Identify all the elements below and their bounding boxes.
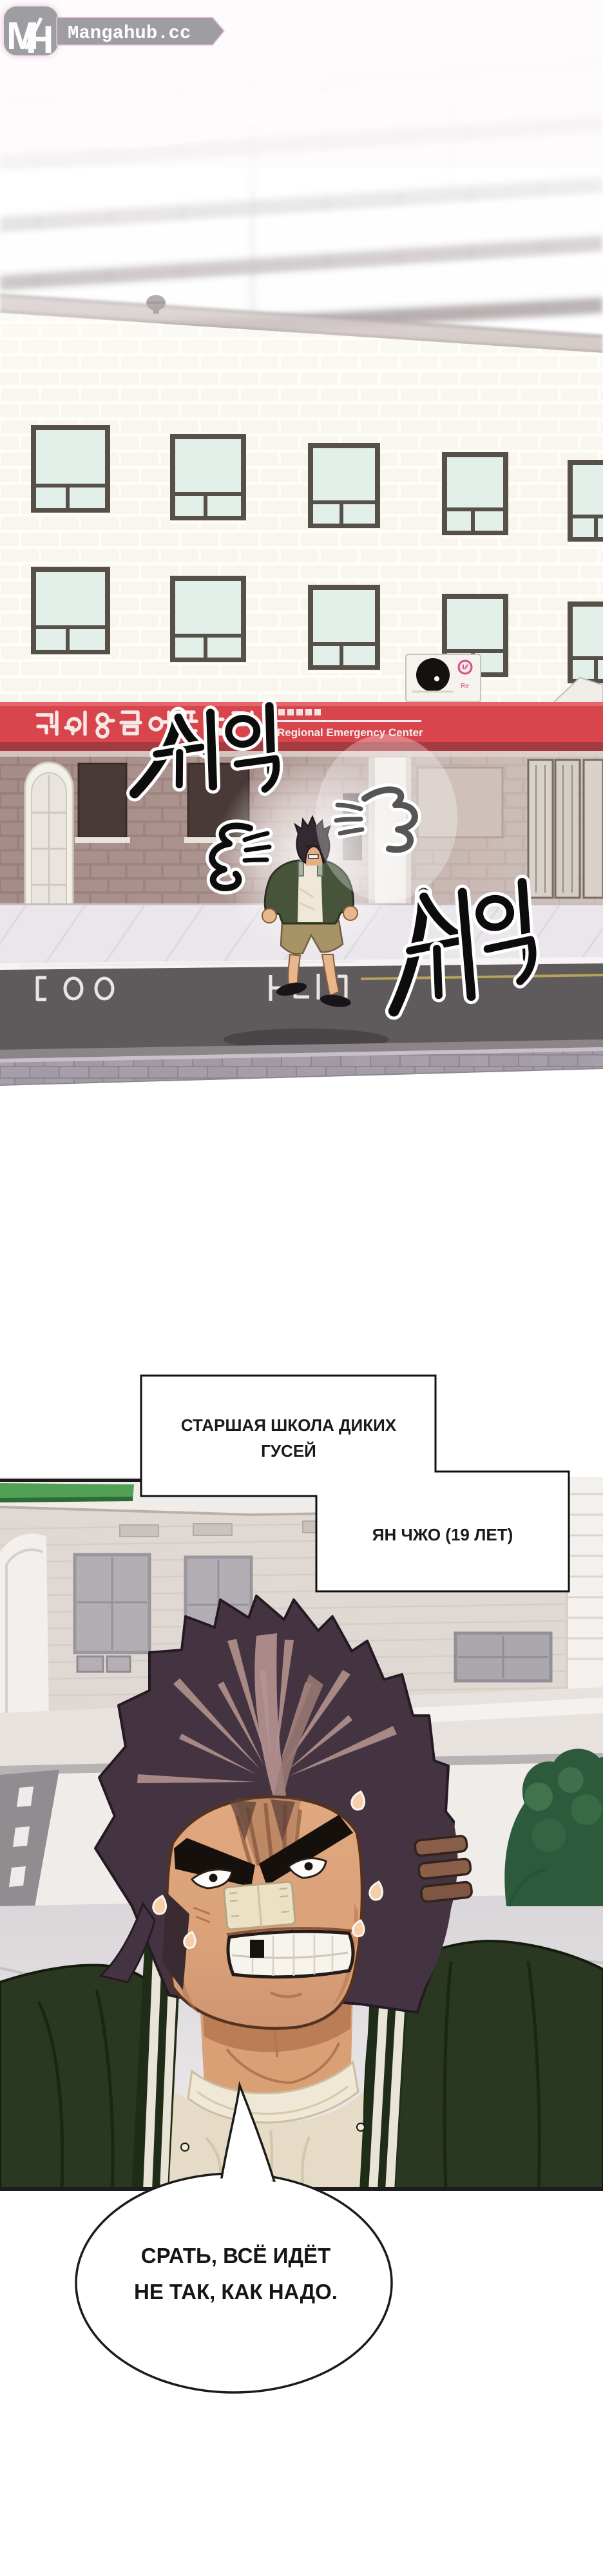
svg-text:Re: Re bbox=[461, 683, 469, 690]
svg-text:ГУСЕЙ: ГУСЕЙ bbox=[261, 1441, 316, 1461]
svg-text:НЕ ТАК, КАК НАДО.: НЕ ТАК, КАК НАДО. bbox=[134, 2280, 338, 2304]
svg-text:СТАРШАЯ ШКОЛА ДИКИХ: СТАРШАЯ ШКОЛА ДИКИХ bbox=[181, 1416, 397, 1435]
svg-text:СРАТЬ, ВСЁ ИДЁТ: СРАТЬ, ВСЁ ИДЁТ bbox=[141, 2244, 330, 2268]
svg-text:Mangahub.cc: Mangahub.cc bbox=[68, 23, 191, 44]
svg-text:ЯН ЧЖО (19 ЛЕТ): ЯН ЧЖО (19 ЛЕТ) bbox=[372, 1525, 513, 1544]
